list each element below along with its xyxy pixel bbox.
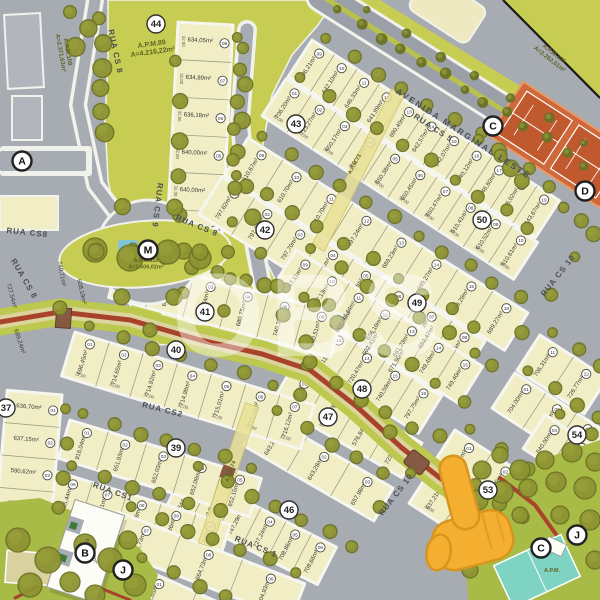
tree-highlight [502,205,509,212]
tree-highlight [246,491,254,499]
tree-highlight [68,462,73,467]
tree-highlight [232,96,240,104]
tree-highlight [358,20,363,25]
tree-icon [580,140,587,147]
lot-dim-label: 32,00 [177,111,183,123]
tree-icon [471,190,484,203]
tree-highlight [312,221,319,228]
tree-icon [182,497,194,509]
tree-highlight [473,192,480,199]
tree-highlight [233,34,238,39]
tree-highlight [94,81,103,90]
tree-icon [218,449,232,463]
tree-icon [377,467,389,479]
tree-icon [95,123,113,141]
tree-icon [230,95,244,109]
tree-icon [181,525,195,539]
lot-number: 04 [267,519,273,525]
tree-icon [371,68,385,82]
tree-icon [468,321,480,333]
tree-icon [545,113,554,122]
marker-c[interactable]: C [532,539,551,558]
tree-icon [173,94,188,109]
apm-label: A.P.M. [544,568,561,574]
tree-highlight [546,114,551,119]
tree-highlight [229,183,237,191]
tree-highlight [144,324,152,332]
tree-highlight [238,44,244,50]
lot-number: 09 [268,576,274,582]
tree-highlight [549,329,554,334]
tree-highlight [475,463,485,473]
tree-icon [303,355,317,369]
tree-highlight [512,462,523,473]
tree-icon [473,461,491,479]
plat-map: 634,05m²32,0008634,89m²32,0007636,18m²32… [0,0,600,600]
tree-highlight [94,13,101,20]
tree-highlight [233,172,238,177]
tree-highlight [471,349,476,354]
tree-icon [510,460,530,480]
tree-highlight [514,509,523,518]
tree-highlight [576,479,588,491]
tree-icon [306,244,316,254]
tree-icon [310,220,323,233]
tree-highlight [287,207,295,215]
tree-icon [299,292,309,302]
tree-icon [193,462,203,472]
tree-icon [257,131,267,141]
tree-highlight [239,367,247,375]
tree-icon [291,568,301,578]
tree-icon [84,321,94,331]
tree-icon [35,547,61,573]
tree-highlight [466,260,473,267]
block-number-41[interactable]: 41 [196,303,214,321]
lot-number: 01 [157,582,163,588]
tree-icon [551,506,569,524]
tree-icon [563,148,572,157]
lot-number: 01 [50,408,56,414]
lot-number: 08 [462,335,468,341]
tree-highlight [223,247,230,254]
tree-highlight [415,232,420,237]
tree-highlight [327,439,335,447]
tree-icon [417,58,426,67]
tree-highlight [309,300,316,307]
lot-number: 13 [409,329,415,335]
lot-number: 16 [504,306,510,312]
lot-number: 13 [399,240,405,246]
tree-highlight [228,155,235,162]
tree-icon [357,19,367,29]
tree-highlight [469,322,476,329]
tree-icon [108,418,121,431]
lot-number: 08 [139,503,145,509]
block-number-label: 44 [151,19,162,30]
tree-highlight [437,53,442,58]
tree-icon [323,299,336,312]
tree-highlight [173,170,181,178]
tree-highlight [504,108,509,113]
tree-icon [413,312,425,324]
tree-icon [335,261,348,274]
lot-dim-label: 32,00 [179,73,185,85]
tree-highlight [437,247,444,254]
marker-a[interactable]: A [13,152,32,171]
block-number-label: 53 [483,485,494,496]
marker-letter: J [120,565,126,577]
marker-b[interactable]: B [76,544,95,563]
tree-highlight [215,505,223,513]
tree-highlight [324,91,331,98]
block-number-54[interactable]: 54 [568,426,586,444]
marker-c[interactable]: C [484,117,503,136]
block-number-50[interactable]: 50 [473,211,491,229]
tree-highlight [127,482,135,490]
tree-icon [145,342,159,356]
tree-icon [85,585,105,600]
tree-highlight [426,155,434,163]
tree-highlight [189,445,196,452]
tree-highlight [65,7,72,14]
marker-j[interactable]: J [568,526,587,545]
tree-icon [257,278,272,293]
block-number-49[interactable]: 49 [408,294,426,312]
tree-highlight [262,189,269,196]
tree-icon [574,214,588,228]
apm-area: A=1.606,02m² [128,264,163,271]
tree-icon [52,501,65,514]
block-number-44[interactable]: 44 [147,15,165,33]
tree-icon [383,425,397,439]
tree-highlight [20,575,33,588]
tree-icon [574,477,596,499]
tree-highlight [522,224,529,231]
lot-number: 02 [322,455,328,461]
lot-number: 05 [216,153,222,159]
lot-number: 05 [224,384,230,390]
tree-icon [548,328,558,338]
tree-icon [406,422,418,434]
tree-icon [114,289,130,305]
tree-icon [170,55,181,66]
tree-highlight [334,6,338,10]
lot-number: 11 [550,350,555,356]
tree-icon [543,181,555,193]
tree-highlight [246,211,255,220]
tree-highlight [100,472,107,479]
lot-number: 02 [317,107,323,113]
tree-icon [458,396,470,408]
lot-number: 17 [496,168,502,174]
lot-number: 06 [418,173,424,179]
tree-highlight [213,267,220,274]
block-number-label: 54 [572,430,583,441]
tree-highlight [519,123,524,128]
tree-highlight [157,514,164,521]
tree-highlight [516,292,523,299]
tree-highlight [302,423,309,430]
tree-highlight [229,124,236,131]
tree-icon [523,366,533,376]
tree-icon [378,345,390,357]
tree-icon [67,461,77,471]
tree-icon [224,273,236,285]
tree-icon [486,359,499,372]
block-number-label: 40 [171,345,182,356]
lot-number: 08 [468,206,474,212]
tree-highlight [115,290,124,299]
tree-highlight [441,69,447,75]
tree-highlight [581,140,585,144]
tree-highlight [300,336,308,344]
tree-highlight [462,87,466,91]
tree-highlight [206,360,213,367]
tree-highlight [120,248,134,262]
marker-letter: M [144,245,153,257]
lot-number: 08 [222,41,228,47]
tree-icon [228,181,242,195]
tree-highlight [487,360,494,367]
tree-icon [478,98,488,108]
small-lot-block [0,196,58,230]
tree-icon [295,514,307,526]
tree-icon [153,487,166,500]
tree-icon [405,357,419,371]
tree-icon [232,33,242,43]
tree-highlight [258,132,263,137]
tree-icon [518,122,527,131]
lot-number: 09 [316,51,322,57]
block-number-53[interactable]: 53 [479,481,497,499]
tree-icon [360,279,374,293]
lot-number: 04 [552,428,558,434]
tree-icon [268,380,278,390]
tree-highlight [54,302,62,310]
tree-highlight [564,149,569,154]
tree-icon [443,326,457,340]
tree-highlight [95,61,105,71]
marker-j[interactable]: J [114,561,133,580]
tree-icon [156,240,180,264]
tree-icon [519,479,537,497]
lot-number: 05 [363,273,369,279]
tree-icon [301,421,314,434]
tree-highlight [477,128,483,134]
tree-highlight [377,35,383,41]
tree-icon [285,206,299,220]
tree-highlight [307,245,312,250]
tree-icon [346,108,360,122]
tree-icon [166,289,182,305]
lot-number: 16 [421,391,427,397]
tree-highlight [310,167,318,175]
tree-highlight [516,327,524,335]
tree-icon [323,90,336,103]
tree-icon [60,572,80,592]
tree-icon [234,63,247,76]
block-number-37[interactable]: 37 [0,399,15,417]
tree-highlight [38,550,52,564]
block-number-39[interactable]: 39 [167,439,185,457]
marker-letter: C [489,121,497,133]
lot-number: 13 [406,110,412,116]
tree-highlight [460,397,467,404]
tree-highlight [147,343,155,351]
block-number-label: 43 [291,119,302,130]
lot-number: 07 [220,78,226,84]
tree-icon [285,148,298,161]
tree-icon [218,305,230,317]
tree-highlight [62,438,69,445]
tree-icon [80,20,97,37]
tree-highlight [259,279,267,287]
tree-icon [56,471,70,485]
lot-number: 09 [303,262,309,268]
tree-icon [461,86,468,93]
tree-highlight [556,410,561,415]
tree-highlight [395,275,400,280]
lot-number: 03 [156,363,162,369]
tree-highlight [95,105,104,114]
block-number-48[interactable]: 48 [353,380,371,398]
tree-highlight [138,554,143,559]
tree-highlight [588,455,598,465]
tree-highlight [451,176,456,181]
tree-icon [119,531,137,549]
tree-icon [93,103,109,119]
tree-icon [205,359,217,371]
tree-highlight [182,526,190,534]
lot-number: 11 [362,81,367,87]
tree-icon [346,541,358,553]
tree-icon [470,72,478,80]
tree-icon [503,107,512,116]
block-number-42[interactable]: 42 [256,221,274,239]
tree-icon [238,77,253,92]
marker-m[interactable]: M [139,241,158,260]
tree-highlight [82,21,91,30]
tree-icon [330,376,343,389]
tree-highlight [389,211,397,219]
tree-icon [294,388,307,401]
lot-number: 04 [245,295,251,301]
tree-icon [436,52,445,61]
tree-highlight [544,133,549,138]
tree-highlight [466,425,471,430]
tree-highlight [574,344,581,351]
block-number-label: 47 [323,412,334,423]
tree-icon [276,308,290,322]
tree-icon [192,244,208,260]
tree-icon [61,404,71,414]
tree-highlight [431,379,436,384]
tree-highlight [403,30,408,35]
tree-icon [402,29,411,38]
tree-highlight [292,569,297,574]
tree-icon [227,154,239,166]
tree-highlight [588,553,598,563]
tree-highlight [582,512,593,523]
marker-letter: B [81,548,89,560]
tree-icon [348,50,361,63]
tree-icon [414,231,424,241]
tree-highlight [364,7,368,11]
tree-highlight [548,474,559,485]
tree-icon [546,472,566,492]
tree-icon [18,573,42,597]
lot-number: 09 [259,153,265,159]
block-number-40[interactable]: 40 [167,341,185,359]
tree-icon [515,326,529,340]
tree-icon [465,259,477,271]
lot-number: 02 [121,353,127,359]
tree-icon [245,489,259,503]
tree-highlight [347,542,354,549]
tree-icon [227,217,237,227]
block-number-43[interactable]: 43 [287,115,305,133]
tree-icon [424,153,438,167]
block-number-47[interactable]: 47 [319,408,337,426]
tree-highlight [300,293,305,298]
lot-number: 07 [292,405,298,411]
tree-icon [396,44,405,53]
tree-highlight [194,462,199,467]
tree-highlight [448,304,455,311]
tree-icon [592,411,600,424]
lot-number: 10 [294,175,300,181]
marker-d[interactable]: D [576,182,595,201]
tree-icon [492,447,508,463]
tree-highlight [354,330,361,337]
tree-icon [307,299,320,312]
tree-icon [134,428,148,442]
tree-highlight [110,419,117,426]
tree-highlight [221,591,228,598]
block-number-46[interactable]: 46 [280,501,298,519]
lot-number: 07 [429,315,435,321]
lot-number: 01 [87,342,93,348]
tree-highlight [235,64,242,71]
tree-highlight [219,306,226,313]
tree-icon [450,175,460,185]
tree-highlight [379,346,386,353]
tree-icon [350,451,363,464]
lot-number: 05 [293,532,299,538]
tree-icon [573,343,586,356]
tree-icon [222,246,235,259]
tree-highlight [226,274,233,281]
tree-highlight [397,45,402,50]
lot-number: 06 [318,545,324,551]
tree-icon [543,132,553,142]
lot-number: 06 [218,116,224,122]
tree-icon [295,73,305,83]
lot-number: 01 [524,387,530,393]
tree-icon [272,406,282,416]
tree-highlight [171,56,177,62]
lot-number: 15 [463,362,469,368]
tree-icon [156,513,169,526]
tree-icon [261,188,274,201]
tree-icon [167,566,180,579]
tree-highlight [87,587,98,598]
tree-highlight [581,163,585,167]
tree-highlight [96,36,105,45]
tree-icon [92,80,109,97]
tree-icon [512,507,528,523]
